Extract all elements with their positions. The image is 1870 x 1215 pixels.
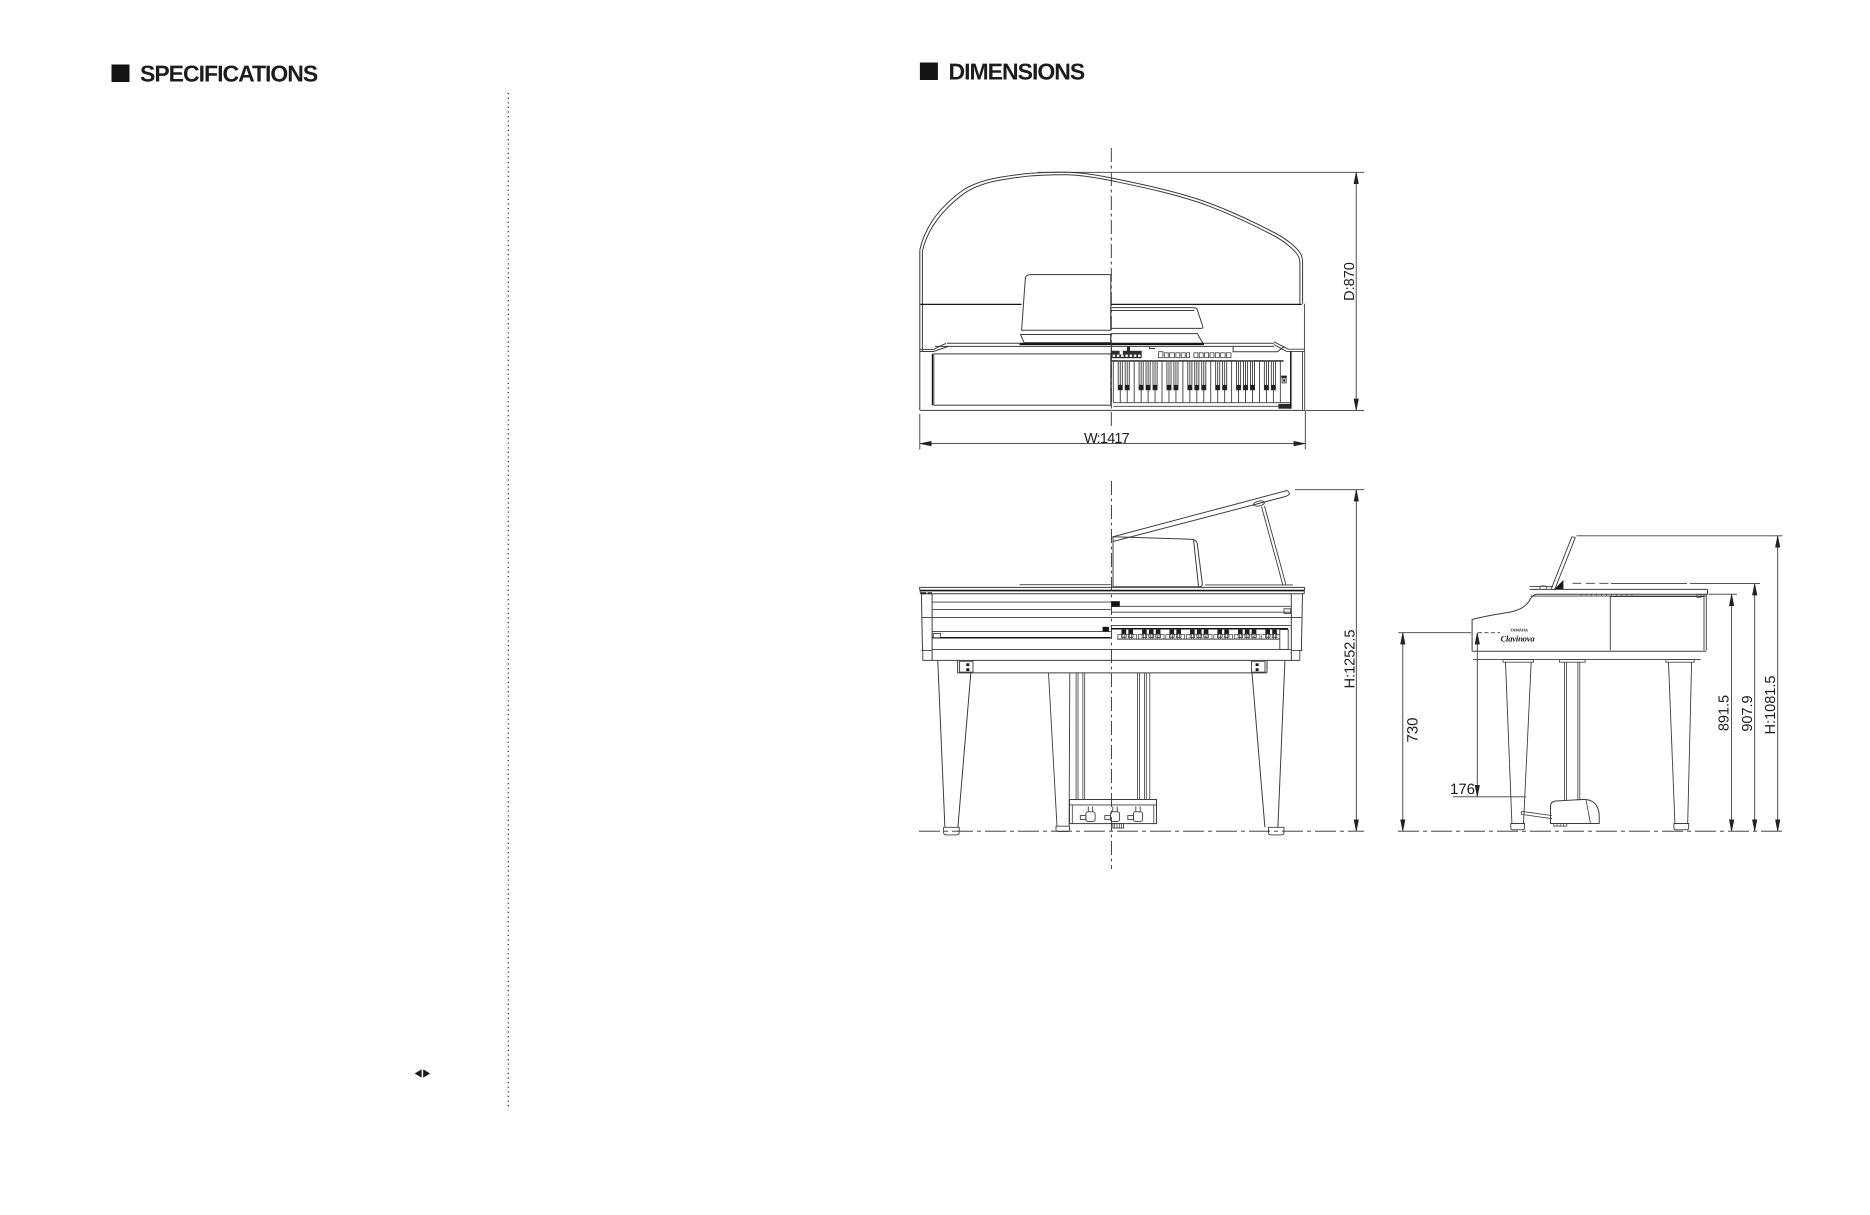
svg-text:SPECIFICATIONS: SPECIFICATIONS [140,61,318,87]
svg-text:D:870: D:870 [1342,262,1358,301]
svg-text:176: 176 [1450,781,1475,798]
svg-text:H:1081.5: H:1081.5 [1763,676,1779,735]
svg-text:W:1417: W:1417 [1084,431,1130,447]
svg-text:730: 730 [1405,717,1422,742]
svg-text:Clavinova: Clavinova [1500,634,1535,644]
svg-text:DIMENSIONS: DIMENSIONS [949,59,1085,85]
svg-text:YAMAHA: YAMAHA [1510,628,1528,633]
svg-text:907.9: 907.9 [1740,695,1756,731]
svg-text:H:1252.5: H:1252.5 [1342,630,1358,689]
svg-text:891.5: 891.5 [1717,695,1733,731]
